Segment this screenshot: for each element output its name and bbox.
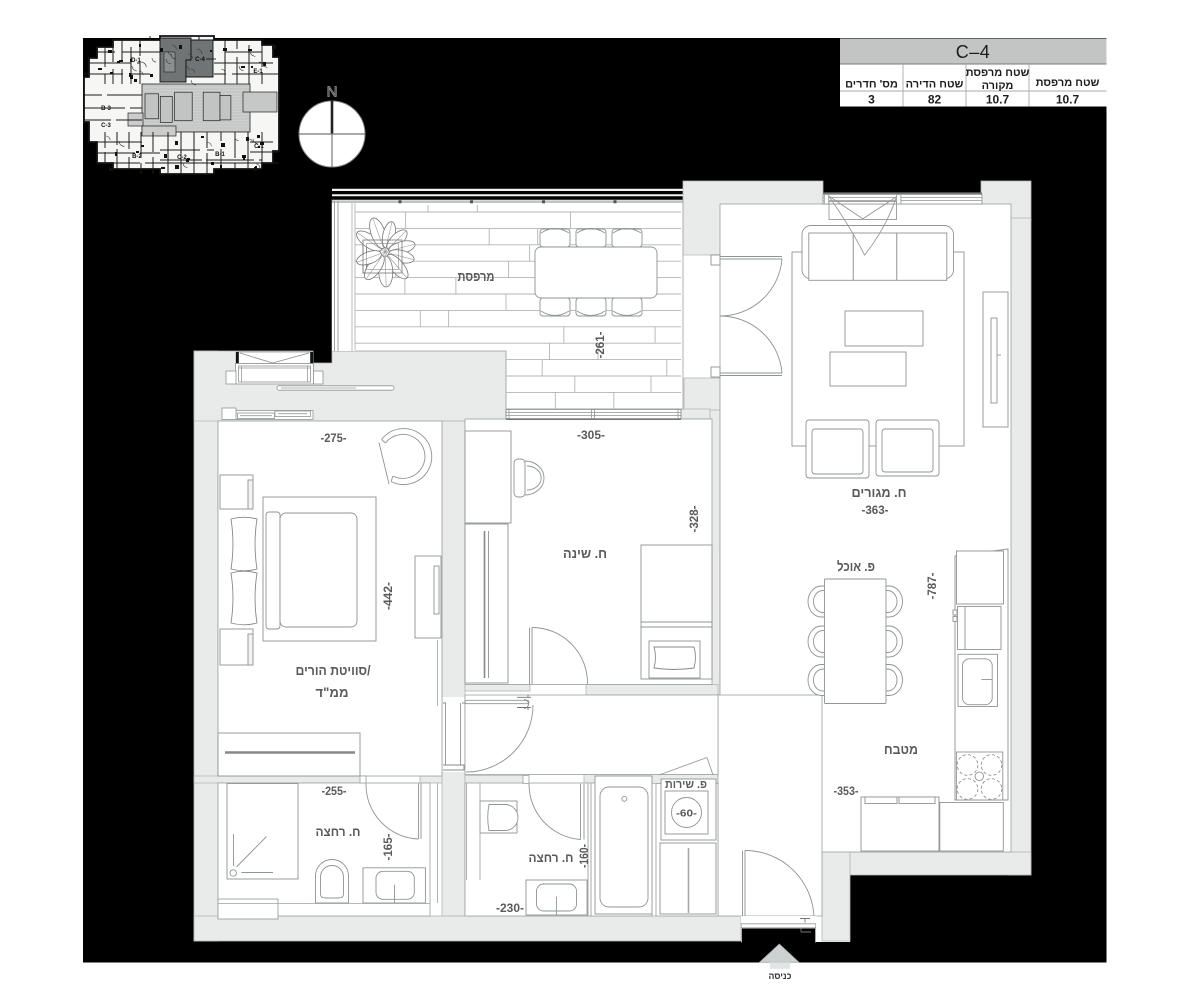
svg-text:ממ"ד: ממ"ד bbox=[316, 685, 349, 700]
svg-text:-305-: -305- bbox=[577, 430, 605, 442]
svg-text:ח. רחצה: ח. רחצה bbox=[529, 851, 574, 865]
svg-text:-261-: -261- bbox=[595, 331, 607, 358]
svg-text:ח. מגורים: ח. מגורים bbox=[852, 485, 907, 500]
svg-text:-255-: -255- bbox=[322, 786, 347, 798]
svg-text:B-2: B-2 bbox=[132, 154, 142, 160]
svg-text:E-1: E-1 bbox=[253, 69, 263, 75]
svg-text:-442-: -442- bbox=[383, 582, 395, 610]
svg-text:C–4: C–4 bbox=[956, 42, 991, 62]
svg-text:ח. שינה: ח. שינה bbox=[563, 546, 607, 561]
svg-text:מרפסת: מרפסת bbox=[458, 269, 495, 284]
svg-text:שטח מרפסת: שטח מרפסת bbox=[1036, 77, 1100, 89]
svg-text:-160-: -160- bbox=[579, 844, 591, 868]
svg-text:B-3: B-3 bbox=[101, 106, 111, 112]
svg-text:C-2: C-2 bbox=[177, 155, 187, 161]
svg-text:-230-: -230- bbox=[496, 903, 524, 915]
svg-text:82: 82 bbox=[928, 93, 942, 107]
svg-text:פ. אוכל: פ. אוכל bbox=[837, 559, 875, 574]
svg-text:פ. שירות: פ. שירות bbox=[665, 779, 707, 791]
svg-text:3: 3 bbox=[868, 93, 875, 107]
svg-text:C-4: C-4 bbox=[195, 57, 205, 63]
svg-text:-328-: -328- bbox=[689, 505, 701, 532]
svg-text:ח. רחצה: ח. רחצה bbox=[316, 825, 361, 839]
svg-text:C-1: C-1 bbox=[254, 144, 264, 150]
svg-text:C-3: C-3 bbox=[101, 123, 111, 129]
svg-text:מקורה: מקורה bbox=[982, 80, 1014, 92]
svg-text:מס' חדרים: מס' חדרים bbox=[845, 79, 898, 91]
svg-text:10.7: 10.7 bbox=[1056, 93, 1080, 107]
svg-text:סוויטת הורים/: סוויטת הורים/ bbox=[296, 663, 371, 678]
svg-text:-787-: -787- bbox=[927, 572, 939, 599]
svg-text:-60-: -60- bbox=[676, 809, 697, 820]
svg-text:-353-: -353- bbox=[834, 786, 859, 798]
svg-text:-275-: -275- bbox=[321, 433, 347, 445]
svg-text:10.7: 10.7 bbox=[986, 93, 1010, 107]
svg-text:שטח מרפסת: שטח מרפסת bbox=[966, 67, 1030, 79]
svg-text:-363-: -363- bbox=[862, 505, 889, 517]
svg-text:N: N bbox=[327, 84, 338, 101]
svg-text:-165-: -165- bbox=[383, 833, 395, 860]
svg-text:B-1: B-1 bbox=[215, 152, 225, 158]
svg-text:שטח הדירה: שטח הדירה bbox=[906, 79, 964, 91]
svg-text:מטבח: מטבח bbox=[884, 742, 918, 757]
svg-text:D-1: D-1 bbox=[131, 58, 141, 64]
svg-text:כניסה: כניסה bbox=[769, 971, 792, 981]
